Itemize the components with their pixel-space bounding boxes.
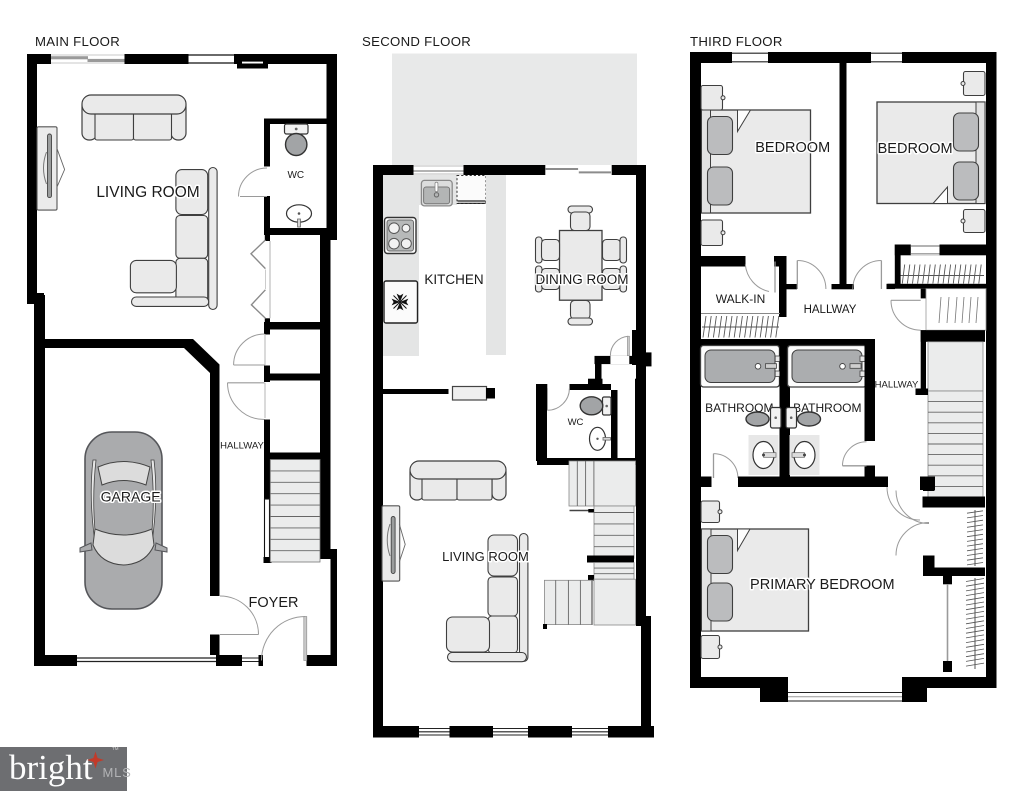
svg-text:TM: TM — [112, 746, 119, 751]
svg-text:bright: bright — [9, 748, 93, 787]
svg-text:BEDROOM: BEDROOM — [755, 140, 830, 156]
svg-text:BEDROOM: BEDROOM — [878, 141, 953, 157]
svg-text:KITCHEN: KITCHEN — [424, 272, 483, 287]
svg-text:DINING ROOM: DINING ROOM — [536, 272, 629, 287]
svg-text:MLS: MLS — [103, 765, 132, 780]
svg-text:WC: WC — [568, 417, 584, 428]
svg-text:THIRD FLOOR: THIRD FLOOR — [690, 34, 783, 49]
svg-text:SECOND FLOOR: SECOND FLOOR — [362, 34, 471, 49]
svg-text:LIVING ROOM: LIVING ROOM — [96, 184, 199, 201]
svg-text:HALLWAY: HALLWAY — [875, 380, 919, 391]
svg-text:HALLWAY: HALLWAY — [804, 304, 857, 316]
svg-text:WALK-IN: WALK-IN — [716, 292, 766, 306]
svg-text:HALLWAY: HALLWAY — [220, 441, 264, 452]
svg-text:FOYER: FOYER — [249, 595, 299, 611]
svg-text:GARAGE: GARAGE — [101, 489, 161, 505]
svg-text:WC: WC — [287, 170, 304, 181]
svg-text:LIVING ROOM: LIVING ROOM — [442, 549, 529, 564]
svg-text:PRIMARY BEDROOM: PRIMARY BEDROOM — [750, 577, 895, 593]
svg-text:MAIN FLOOR: MAIN FLOOR — [35, 34, 120, 49]
